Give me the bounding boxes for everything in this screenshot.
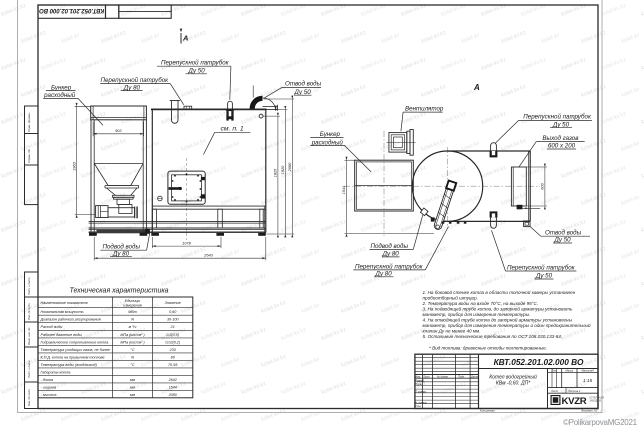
svg-text:°С: °С [130, 363, 134, 367]
svg-text:Утв.: Утв. [415, 404, 421, 408]
svg-text:Изм.: Изм. [415, 375, 421, 379]
svg-text:манометр, прибор для измерения: манометр, прибор для измерения температу… [423, 312, 531, 317]
svg-text:клапан Ду не менее 40 мм.: клапан Ду не менее 40 мм. [423, 328, 481, 333]
svg-text:Температура уходящих газов, не: Температура уходящих газов, не более [41, 348, 110, 352]
svg-text:Номинальная мощность: Номинальная мощность [41, 310, 84, 314]
svg-text:Отвод воды: Отвод воды [285, 81, 322, 88]
svg-text:0,60: 0,60 [169, 310, 177, 314]
svg-text:Лист: Лист [422, 375, 431, 379]
svg-text:- высота: - высота [41, 393, 57, 397]
svg-text:Значение: Значение [165, 301, 181, 305]
svg-text:21: 21 [170, 325, 175, 329]
svg-text:Перепускной патрубок: Перепускной патрубок [161, 59, 230, 66]
svg-text:манометр, прибор для измерения: манометр, прибор для измерения температу… [423, 322, 591, 328]
svg-text:Лит.: Лит. [550, 369, 557, 373]
svg-text:мм: мм [130, 378, 136, 382]
svg-text:измерения: измерения [123, 303, 141, 307]
svg-text:Техническая характеристика: Техническая характеристика [69, 288, 168, 295]
svg-text:Подвод воды: Подвод воды [371, 243, 409, 250]
svg-text:Бункер: Бункер [320, 131, 341, 138]
svg-text:1963: 1963 [71, 161, 76, 170]
svg-text:©PolikarpovaMG2021: ©PolikarpovaMG2021 [563, 418, 638, 427]
svg-text:Инв. № дубл.: Инв. № дубл. [27, 303, 31, 320]
svg-text:Наименование показателя: Наименование показателя [41, 301, 88, 305]
svg-text:Вентилятор: Вентилятор [405, 106, 444, 113]
svg-text:Подп. и дата: Подп. и дата [27, 360, 31, 378]
svg-text:1. На боковой стенке котла в: 1. На боковой стенке котла в области топ… [423, 289, 576, 295]
svg-text:Дата: Дата [470, 375, 478, 379]
svg-text:Перепускной патрубок: Перепускной патрубок [523, 114, 592, 121]
svg-text:Подп. и дата: Подп. и дата [27, 277, 31, 295]
svg-text:Масштаб: Масштаб [581, 369, 594, 373]
svg-text:Копировал: Копировал [480, 408, 495, 412]
svg-text:Масса: Масса [565, 369, 573, 373]
svg-text:Ду 50: Ду 50 [552, 121, 570, 128]
svg-text:230: 230 [169, 348, 177, 352]
svg-text:Ду 80: Ду 80 [375, 270, 393, 277]
svg-text:Единицы: Единицы [125, 299, 141, 303]
svg-text:Выход газов: Выход газов [542, 135, 579, 142]
svg-text:2080: 2080 [287, 162, 292, 172]
svg-text:Расход воды: Расход воды [41, 325, 63, 329]
svg-text:КВТ.052.201.02.000 ВО: КВТ.052.201.02.000 ВО [494, 357, 584, 367]
svg-text:Лист: Лист [550, 389, 559, 393]
svg-text:1544: 1544 [169, 385, 177, 389]
svg-text:КВТ.052.201.02.000 ВО: КВТ.052.201.02.000 ВО [39, 7, 104, 13]
svg-text:Ду 50: Ду 50 [553, 237, 571, 244]
svg-text:КВм -0,60. ДП*: КВм -0,60. ДП* [496, 381, 531, 387]
svg-text:Взам. инв. №: Взам. инв. № [27, 328, 31, 345]
svg-text:2642: 2642 [168, 378, 177, 382]
svg-text:30-100: 30-100 [167, 318, 179, 322]
svg-text:К.П.Д. котла на привычном топл: К.П.Д. котла на привычном топливе [41, 355, 105, 359]
svg-text:- длина: - длина [41, 378, 54, 382]
svg-text:1825: 1825 [273, 168, 278, 177]
svg-text:°С: °С [130, 348, 134, 352]
svg-text:А: А [473, 83, 480, 92]
svg-text:600: 600 [540, 182, 545, 189]
svg-text:см. п. 1: см. п. 1 [221, 125, 244, 132]
svg-text:902: 902 [115, 128, 122, 133]
svg-text:0,3(3,0): 0,3(3,0) [166, 333, 179, 337]
svg-text:Пров.: Пров. [415, 382, 422, 386]
svg-text:Котел водогрейный: Котел водогрейный [489, 373, 537, 380]
svg-text:мм: мм [130, 385, 136, 389]
svg-text:Перепускной патрубок: Перепускной патрубок [101, 77, 170, 84]
svg-text:- ширина: - ширина [41, 385, 57, 389]
svg-text:Листов 1: Листов 1 [567, 389, 581, 393]
svg-text:Перепускной патрубок: Перепускной патрубок [507, 265, 576, 272]
svg-text:Ду 80: Ду 80 [382, 250, 400, 257]
svg-text:Диапазон рабочего регулировани: Диапазон рабочего регулирования [40, 318, 101, 322]
svg-text:1544: 1544 [341, 185, 346, 194]
svg-text:Перв. примен.: Перв. примен. [27, 112, 31, 132]
svg-text:KVZR: KVZR [562, 396, 587, 407]
svg-text:Справ. №: Справ. № [27, 149, 31, 163]
svg-text:2. Температура воды на входе: 2. Температура воды на входе 70°С, на вы… [422, 301, 539, 306]
svg-text:МВт: МВт [128, 310, 137, 314]
svg-text:Перепускной патрубок: Перепускной патрубок [355, 263, 424, 270]
svg-text:0,02(0,2): 0,02(0,2) [165, 340, 181, 344]
svg-text:Ду 50: Ду 50 [188, 68, 206, 75]
svg-text:КОТЕЛЬНЫЙ: КОТЕЛЬНЫЙ [590, 397, 605, 400]
svg-text:пробоотборный штуцер.: пробоотборный штуцер. [423, 295, 478, 301]
svg-text:Формат А2: Формат А2 [581, 408, 598, 412]
svg-text:Габариты котла: Габариты котла [41, 370, 71, 374]
svg-text:3. На подводящей трубе котла,: 3. На подводящей трубе котла, до запорно… [423, 306, 573, 312]
svg-text:* Вид топлива: древесные отхо: * Вид топлива: древесные отходы пеллетир… [429, 345, 547, 350]
svg-text:м ³/ч: м ³/ч [129, 325, 137, 329]
svg-text:2643: 2643 [203, 253, 213, 258]
svg-text:Н. контр.: Н. контр. [415, 400, 427, 404]
svg-text:4. На отводящей трубе котла д: 4. На отводящей трубе котла до запорной … [423, 316, 573, 322]
svg-text:5. Остальные технические треб: 5. Остальные технические требования по О… [423, 334, 563, 339]
svg-text:Рабочее давление воды: Рабочее давление воды [41, 333, 83, 337]
svg-text:мм: мм [130, 393, 136, 397]
svg-text:№ докум.: № докум. [437, 375, 449, 379]
svg-text:Т. контр.: Т. контр. [415, 389, 426, 393]
svg-text:1:15: 1:15 [583, 378, 593, 384]
svg-text:2080: 2080 [168, 393, 178, 397]
svg-text:Разраб.: Разраб. [415, 378, 425, 382]
svg-text:Гидравлическое сопротивление к: Гидравлическое сопротивление котла [41, 340, 109, 344]
svg-text:1920: 1920 [280, 165, 285, 174]
svg-text:70-95: 70-95 [168, 363, 178, 367]
svg-text:Инв. № подл.: Инв. № подл. [27, 388, 31, 406]
svg-text:МПа (кгс/см² ): МПа (кгс/см² ) [120, 333, 145, 337]
svg-text:А: А [182, 34, 188, 43]
svg-text:Подп.: Подп. [458, 375, 465, 379]
svg-text:МПа (кгс/см² ): МПа (кгс/см² ) [120, 340, 145, 344]
svg-text:ЗАВОД Р.В.: ЗАВОД Р.В. [590, 400, 603, 403]
svg-text:1078: 1078 [182, 241, 191, 246]
svg-text:Температура воды (вход/выход): Температура воды (вход/выход) [41, 363, 98, 367]
svg-text:Ду 50: Ду 50 [535, 273, 553, 280]
